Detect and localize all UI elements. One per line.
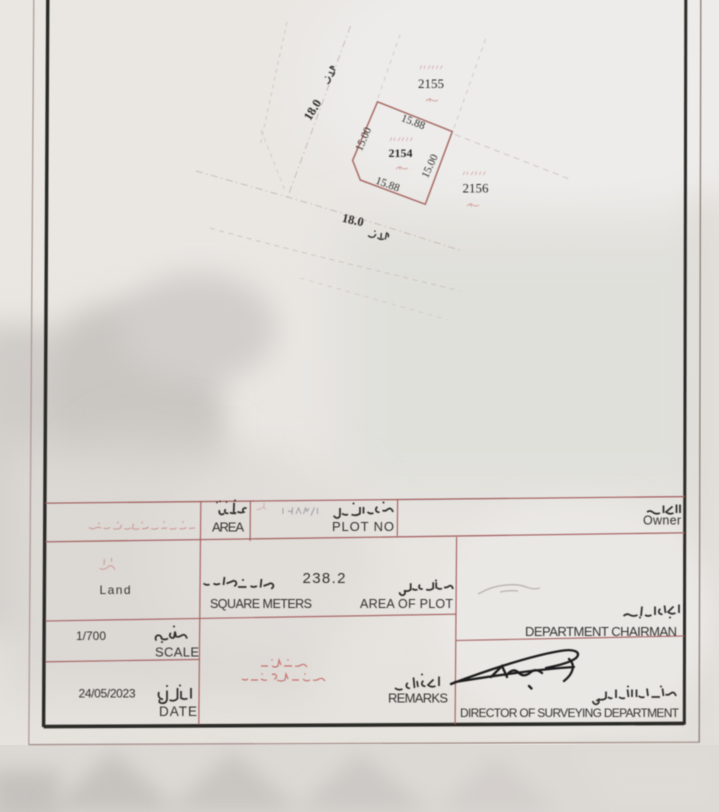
svg-text:SCALE: SCALE <box>155 645 199 660</box>
svg-text:2155: 2155 <box>418 76 444 91</box>
svg-text:238.2: 238.2 <box>303 570 346 587</box>
svg-text:AREA OF PLOT: AREA OF PLOT <box>360 597 453 611</box>
svg-text:SQUARE METERS: SQUARE METERS <box>210 597 312 611</box>
svg-text:PLOT NO: PLOT NO <box>332 519 394 534</box>
svg-text:DIRECTOR OF SURVEYING DEPARTME: DIRECTOR OF SURVEYING DEPARTMENT <box>460 706 680 720</box>
svg-text:AREA: AREA <box>212 520 244 535</box>
svg-text:24/05/2023: 24/05/2023 <box>79 687 136 701</box>
svg-text:2154: 2154 <box>389 146 413 160</box>
svg-text:1/700: 1/700 <box>76 629 106 643</box>
svg-text:REMARKS: REMARKS <box>388 691 448 706</box>
svg-text:DEPARTMENT CHAIRMAN: DEPARTMENT CHAIRMAN <box>525 624 677 639</box>
svg-text:Land: Land <box>100 583 131 597</box>
svg-text:DATE: DATE <box>159 704 197 719</box>
svg-text:Owner: Owner <box>643 514 681 528</box>
svg-text:2156: 2156 <box>463 181 490 196</box>
